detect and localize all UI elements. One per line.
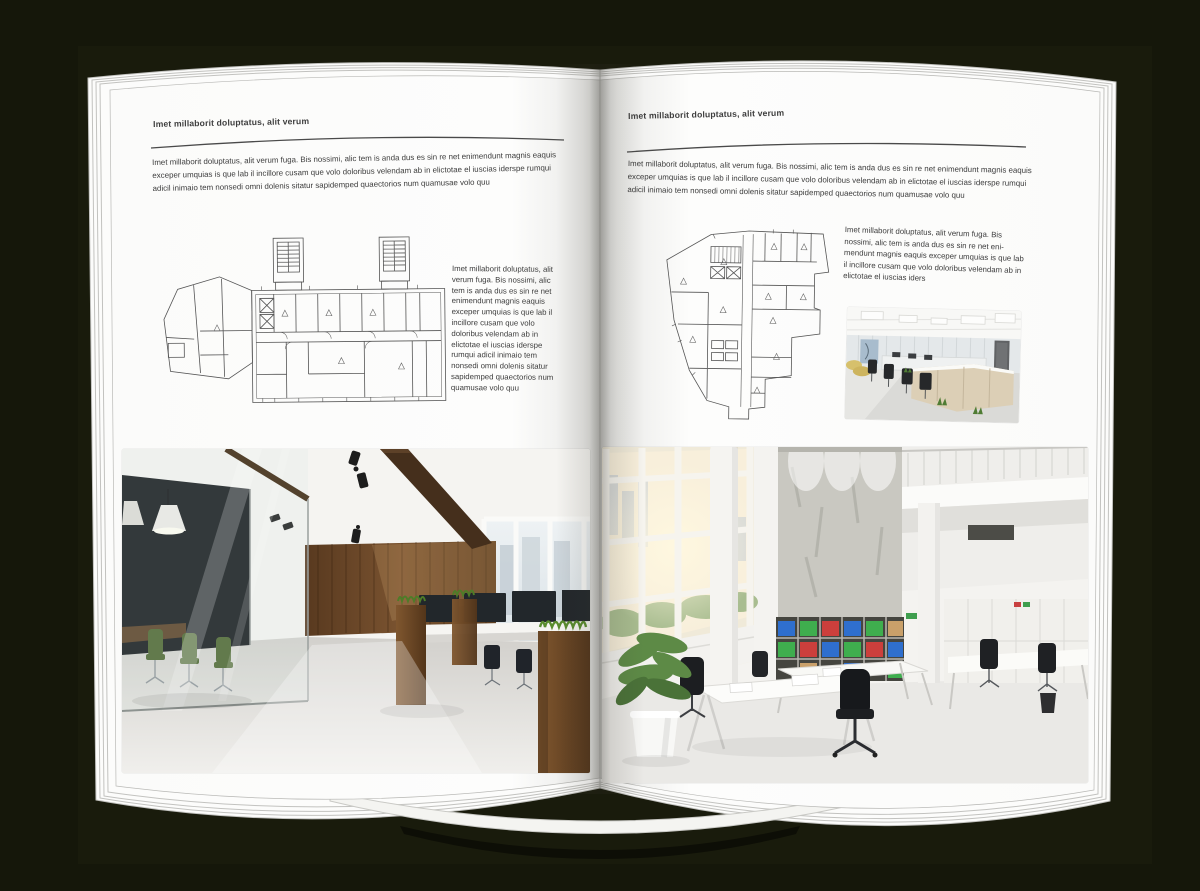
office-photo-small — [845, 307, 1022, 423]
book-mockup-stage: Imet millaborit doluptatus, alit verum I… — [0, 0, 1200, 891]
exit-sign — [906, 613, 917, 619]
vent — [968, 525, 1014, 540]
right-page: Imet millaborit doluptatus, alit verum I… — [0, 0, 1200, 891]
right-side-text: Imet millaborit doluptatus, alit verum f… — [843, 224, 1025, 288]
office-photo-right — [602, 447, 1088, 783]
floor-plan-right — [651, 220, 844, 423]
right-page-header: Imet millaborit doluptatus, alit verum — [628, 108, 784, 121]
concrete-wall — [778, 447, 902, 619]
right-header-rule — [626, 136, 1028, 156]
right-page-intro: Imet millaborit doluptatus, alit verum f… — [627, 157, 1042, 204]
waste-bin — [1040, 693, 1056, 713]
